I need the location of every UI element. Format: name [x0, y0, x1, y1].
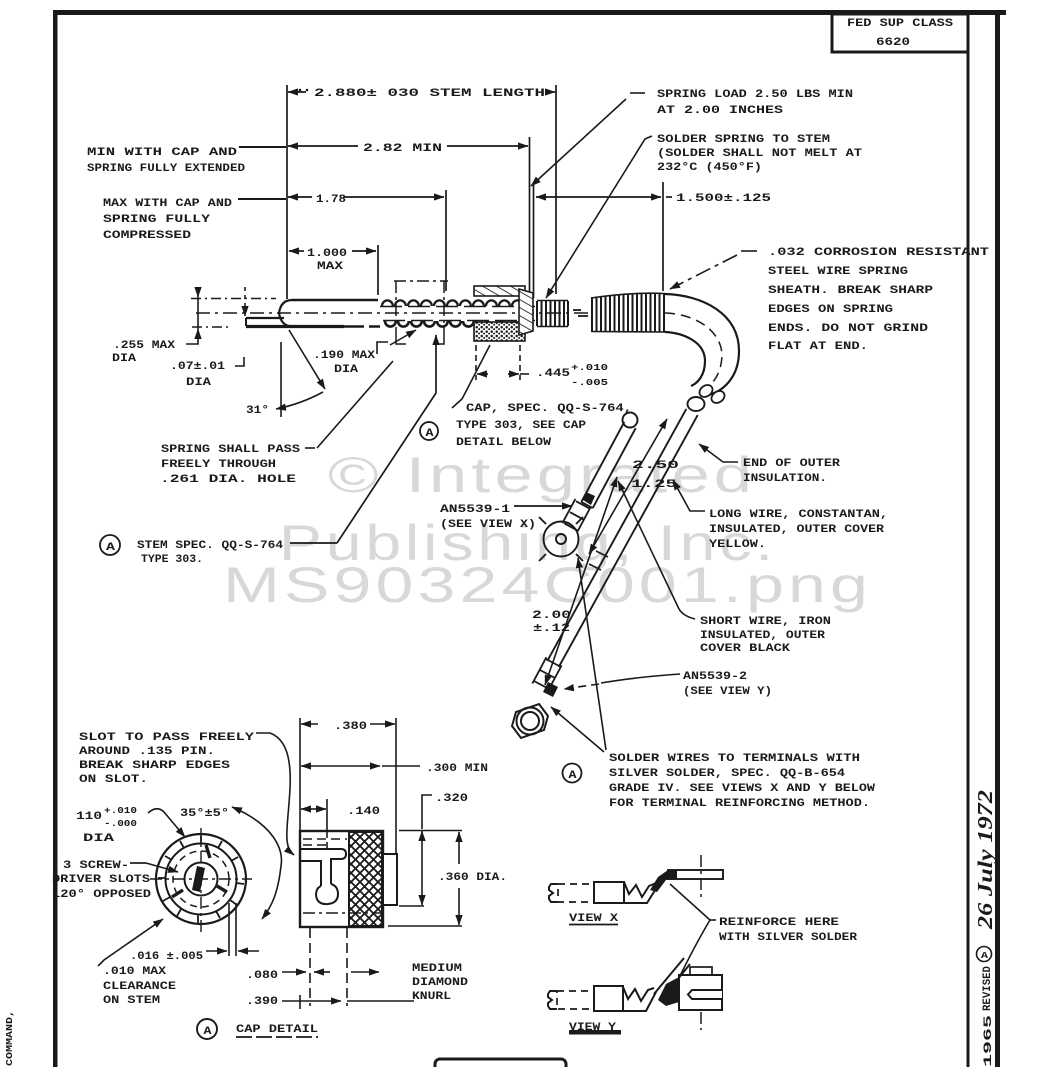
svg-text:.390: .390 [246, 996, 278, 1008]
svg-text:1.78: 1.78 [316, 194, 346, 206]
svg-text:EDGES ON SPRING: EDGES ON SPRING [768, 304, 893, 316]
svg-text:.320: .320 [435, 793, 468, 805]
svg-text:1965: 1965 [983, 1014, 995, 1067]
svg-text:A: A [106, 542, 116, 554]
svg-text:FOR TERMINAL REINFORCING METHO: FOR TERMINAL REINFORCING METHOD. [609, 798, 870, 810]
svg-text:.032 CORROSION RESISTANT: .032 CORROSION RESISTANT [768, 247, 990, 259]
svg-text:MEDIUM: MEDIUM [412, 963, 462, 975]
svg-text:YELLOW.: YELLOW. [709, 539, 766, 551]
svg-text:SPRING FULLY: SPRING FULLY [103, 214, 211, 226]
svg-text:.010 MAX: .010 MAX [103, 966, 166, 978]
svg-text:LONG WIRE, CONSTANTAN,: LONG WIRE, CONSTANTAN, [709, 509, 888, 521]
svg-text:END OF OUTER: END OF OUTER [743, 458, 840, 470]
svg-text:.380: .380 [334, 721, 367, 733]
svg-text:31°: 31° [246, 405, 269, 417]
svg-text:2.00: 2.00 [532, 610, 571, 622]
svg-text:VIEW Y: VIEW Y [569, 1022, 616, 1034]
svg-text:1.25: 1.25 [631, 479, 678, 491]
svg-text:CLEARANCE: CLEARANCE [103, 981, 176, 993]
svg-text:INSULATED, OUTER COVER: INSULATED, OUTER COVER [709, 524, 884, 536]
svg-text:TYPE 303, SEE CAP: TYPE 303, SEE CAP [456, 420, 586, 432]
svg-text:SPRING SHALL PASS: SPRING SHALL PASS [161, 444, 300, 456]
svg-text:CAP, SPEC. QQ-S-764,: CAP, SPEC. QQ-S-764, [466, 403, 632, 415]
svg-text:6620: 6620 [876, 37, 910, 49]
svg-text:.300 MIN: .300 MIN [426, 763, 488, 775]
svg-text:2.82 MIN: 2.82 MIN [363, 143, 442, 155]
svg-text:STEM SPEC. QQ-S-764: STEM SPEC. QQ-S-764 [137, 540, 283, 552]
svg-text:INSULATION.: INSULATION. [743, 473, 827, 485]
svg-text:.016 ±.005: .016 ±.005 [130, 951, 203, 963]
svg-text:35°±5°: 35°±5° [180, 808, 229, 820]
svg-text:.140: .140 [347, 806, 380, 818]
svg-text:1.000: 1.000 [307, 248, 347, 260]
svg-text:WITH SILVER SOLDER: WITH SILVER SOLDER [719, 932, 857, 944]
svg-text:A: A [569, 770, 577, 782]
svg-text:AROUND .135 PIN.: AROUND .135 PIN. [79, 746, 215, 758]
svg-text:+.010: +.010 [104, 806, 137, 816]
svg-text:+.010: +.010 [571, 363, 608, 373]
svg-text:-.005: -.005 [571, 378, 608, 388]
svg-text:.360 DIA.: .360 DIA. [438, 872, 507, 884]
svg-text:3 SCREW-: 3 SCREW- [63, 860, 129, 872]
svg-text:.190 MAX: .190 MAX [313, 350, 375, 362]
svg-text:DIA: DIA [112, 353, 136, 365]
svg-text:MAX WITH CAP AND: MAX WITH CAP AND [103, 198, 232, 210]
svg-text:DIA: DIA [83, 833, 115, 845]
svg-text:AN5539-1: AN5539-1 [440, 504, 511, 516]
svg-text:(SOLDER SHALL NOT MELT AT: (SOLDER SHALL NOT MELT AT [657, 148, 862, 160]
svg-text:SLOT TO PASS FREELY: SLOT TO PASS FREELY [79, 732, 255, 744]
svg-text:SPRING LOAD 2.50 LBS MIN: SPRING LOAD 2.50 LBS MIN [657, 89, 853, 101]
svg-text:.255 MAX: .255 MAX [113, 340, 175, 352]
svg-text:COMMAND,: COMMAND, [5, 1010, 15, 1066]
svg-text:BREAK SHARP EDGES: BREAK SHARP EDGES [79, 760, 231, 772]
svg-text:110: 110 [76, 811, 102, 823]
svg-text:STEEL WIRE SPRING: STEEL WIRE SPRING [768, 266, 908, 278]
svg-text:CAP DETAIL: CAP DETAIL [236, 1024, 318, 1036]
svg-text:.07±.01: .07±.01 [170, 361, 225, 373]
svg-text:(SEE VIEW Y): (SEE VIEW Y) [683, 686, 772, 698]
svg-text:A: A [204, 1026, 212, 1038]
svg-text:© Integrated: © Integrated [328, 447, 756, 503]
svg-text:2.880± 030 STEM LENGTH: 2.880± 030 STEM LENGTH [314, 88, 545, 100]
svg-text:FED SUP CLASS: FED SUP CLASS [847, 18, 953, 30]
svg-text:AT 2.00 INCHES: AT 2.00 INCHES [657, 105, 784, 117]
svg-text:1.500±.125: 1.500±.125 [676, 193, 772, 205]
svg-text:SILVER SOLDER, SPEC. QQ-B-654: SILVER SOLDER, SPEC. QQ-B-654 [609, 768, 845, 780]
svg-text:26 July 1972: 26 July 1972 [973, 789, 997, 930]
svg-text:DIAMOND: DIAMOND [412, 977, 468, 989]
svg-text:A: A [426, 428, 434, 440]
svg-text:SHORT WIRE, IRON: SHORT WIRE, IRON [700, 616, 831, 628]
svg-text:GRADE IV. SEE VIEWS X AND Y B: GRADE IV. SEE VIEWS X AND Y BELOW [609, 783, 875, 795]
svg-text:REINFORCE HERE: REINFORCE HERE [719, 917, 840, 929]
svg-text:REVISED: REVISED [982, 966, 994, 1011]
svg-text:DRIVER SLOTS: DRIVER SLOTS [52, 874, 150, 886]
svg-text:SOLDER WIRES TO TERMINALS WITH: SOLDER WIRES TO TERMINALS WITH [609, 753, 860, 765]
svg-text:.261 DIA. HOLE: .261 DIA. HOLE [160, 474, 297, 486]
svg-text:(SEE VIEW X): (SEE VIEW X) [440, 519, 536, 531]
svg-text:±.12: ±.12 [533, 623, 570, 635]
svg-text:SPRING FULLY EXTENDED: SPRING FULLY EXTENDED [87, 163, 245, 175]
svg-text:AN5539-2: AN5539-2 [683, 671, 747, 683]
svg-text:.080: .080 [246, 970, 278, 982]
svg-text:232°C (450°F): 232°C (450°F) [657, 162, 762, 174]
svg-text:SHEATH. BREAK SHARP: SHEATH. BREAK SHARP [768, 285, 934, 297]
svg-text:ENDS. DO NOT GRIND: ENDS. DO NOT GRIND [768, 323, 929, 335]
svg-text:COVER BLACK: COVER BLACK [700, 643, 790, 655]
svg-text:2.50: 2.50 [632, 460, 679, 472]
svg-text:VIEW X: VIEW X [569, 913, 618, 925]
svg-text:ON STEM: ON STEM [103, 995, 160, 1007]
svg-text:-.000: -.000 [104, 819, 137, 829]
svg-text:DETAIL BELOW: DETAIL BELOW [456, 437, 551, 449]
svg-text:DIA: DIA [186, 377, 211, 389]
svg-text:A: A [981, 951, 989, 961]
svg-text:DIA: DIA [334, 364, 358, 376]
svg-text:COMPRESSED: COMPRESSED [103, 230, 192, 242]
svg-text:MAX: MAX [317, 261, 344, 273]
svg-text:.445: .445 [536, 368, 571, 380]
svg-text:FLAT AT END.: FLAT AT END. [768, 341, 868, 353]
svg-text:MS90324C001.png: MS90324C001.png [223, 557, 872, 613]
svg-text:120° OPPOSED: 120° OPPOSED [52, 889, 151, 901]
svg-text:SOLDER SPRING TO STEM: SOLDER SPRING TO STEM [657, 134, 830, 146]
svg-text:KNURL: KNURL [412, 991, 451, 1003]
svg-text:INSULATED, OUTER: INSULATED, OUTER [700, 630, 825, 642]
svg-text:ON SLOT.: ON SLOT. [79, 774, 148, 786]
svg-text:TYPE 303.: TYPE 303. [141, 554, 203, 566]
svg-text:FREELY THROUGH: FREELY THROUGH [161, 459, 276, 471]
svg-text:MIN WITH CAP AND: MIN WITH CAP AND [87, 147, 238, 159]
